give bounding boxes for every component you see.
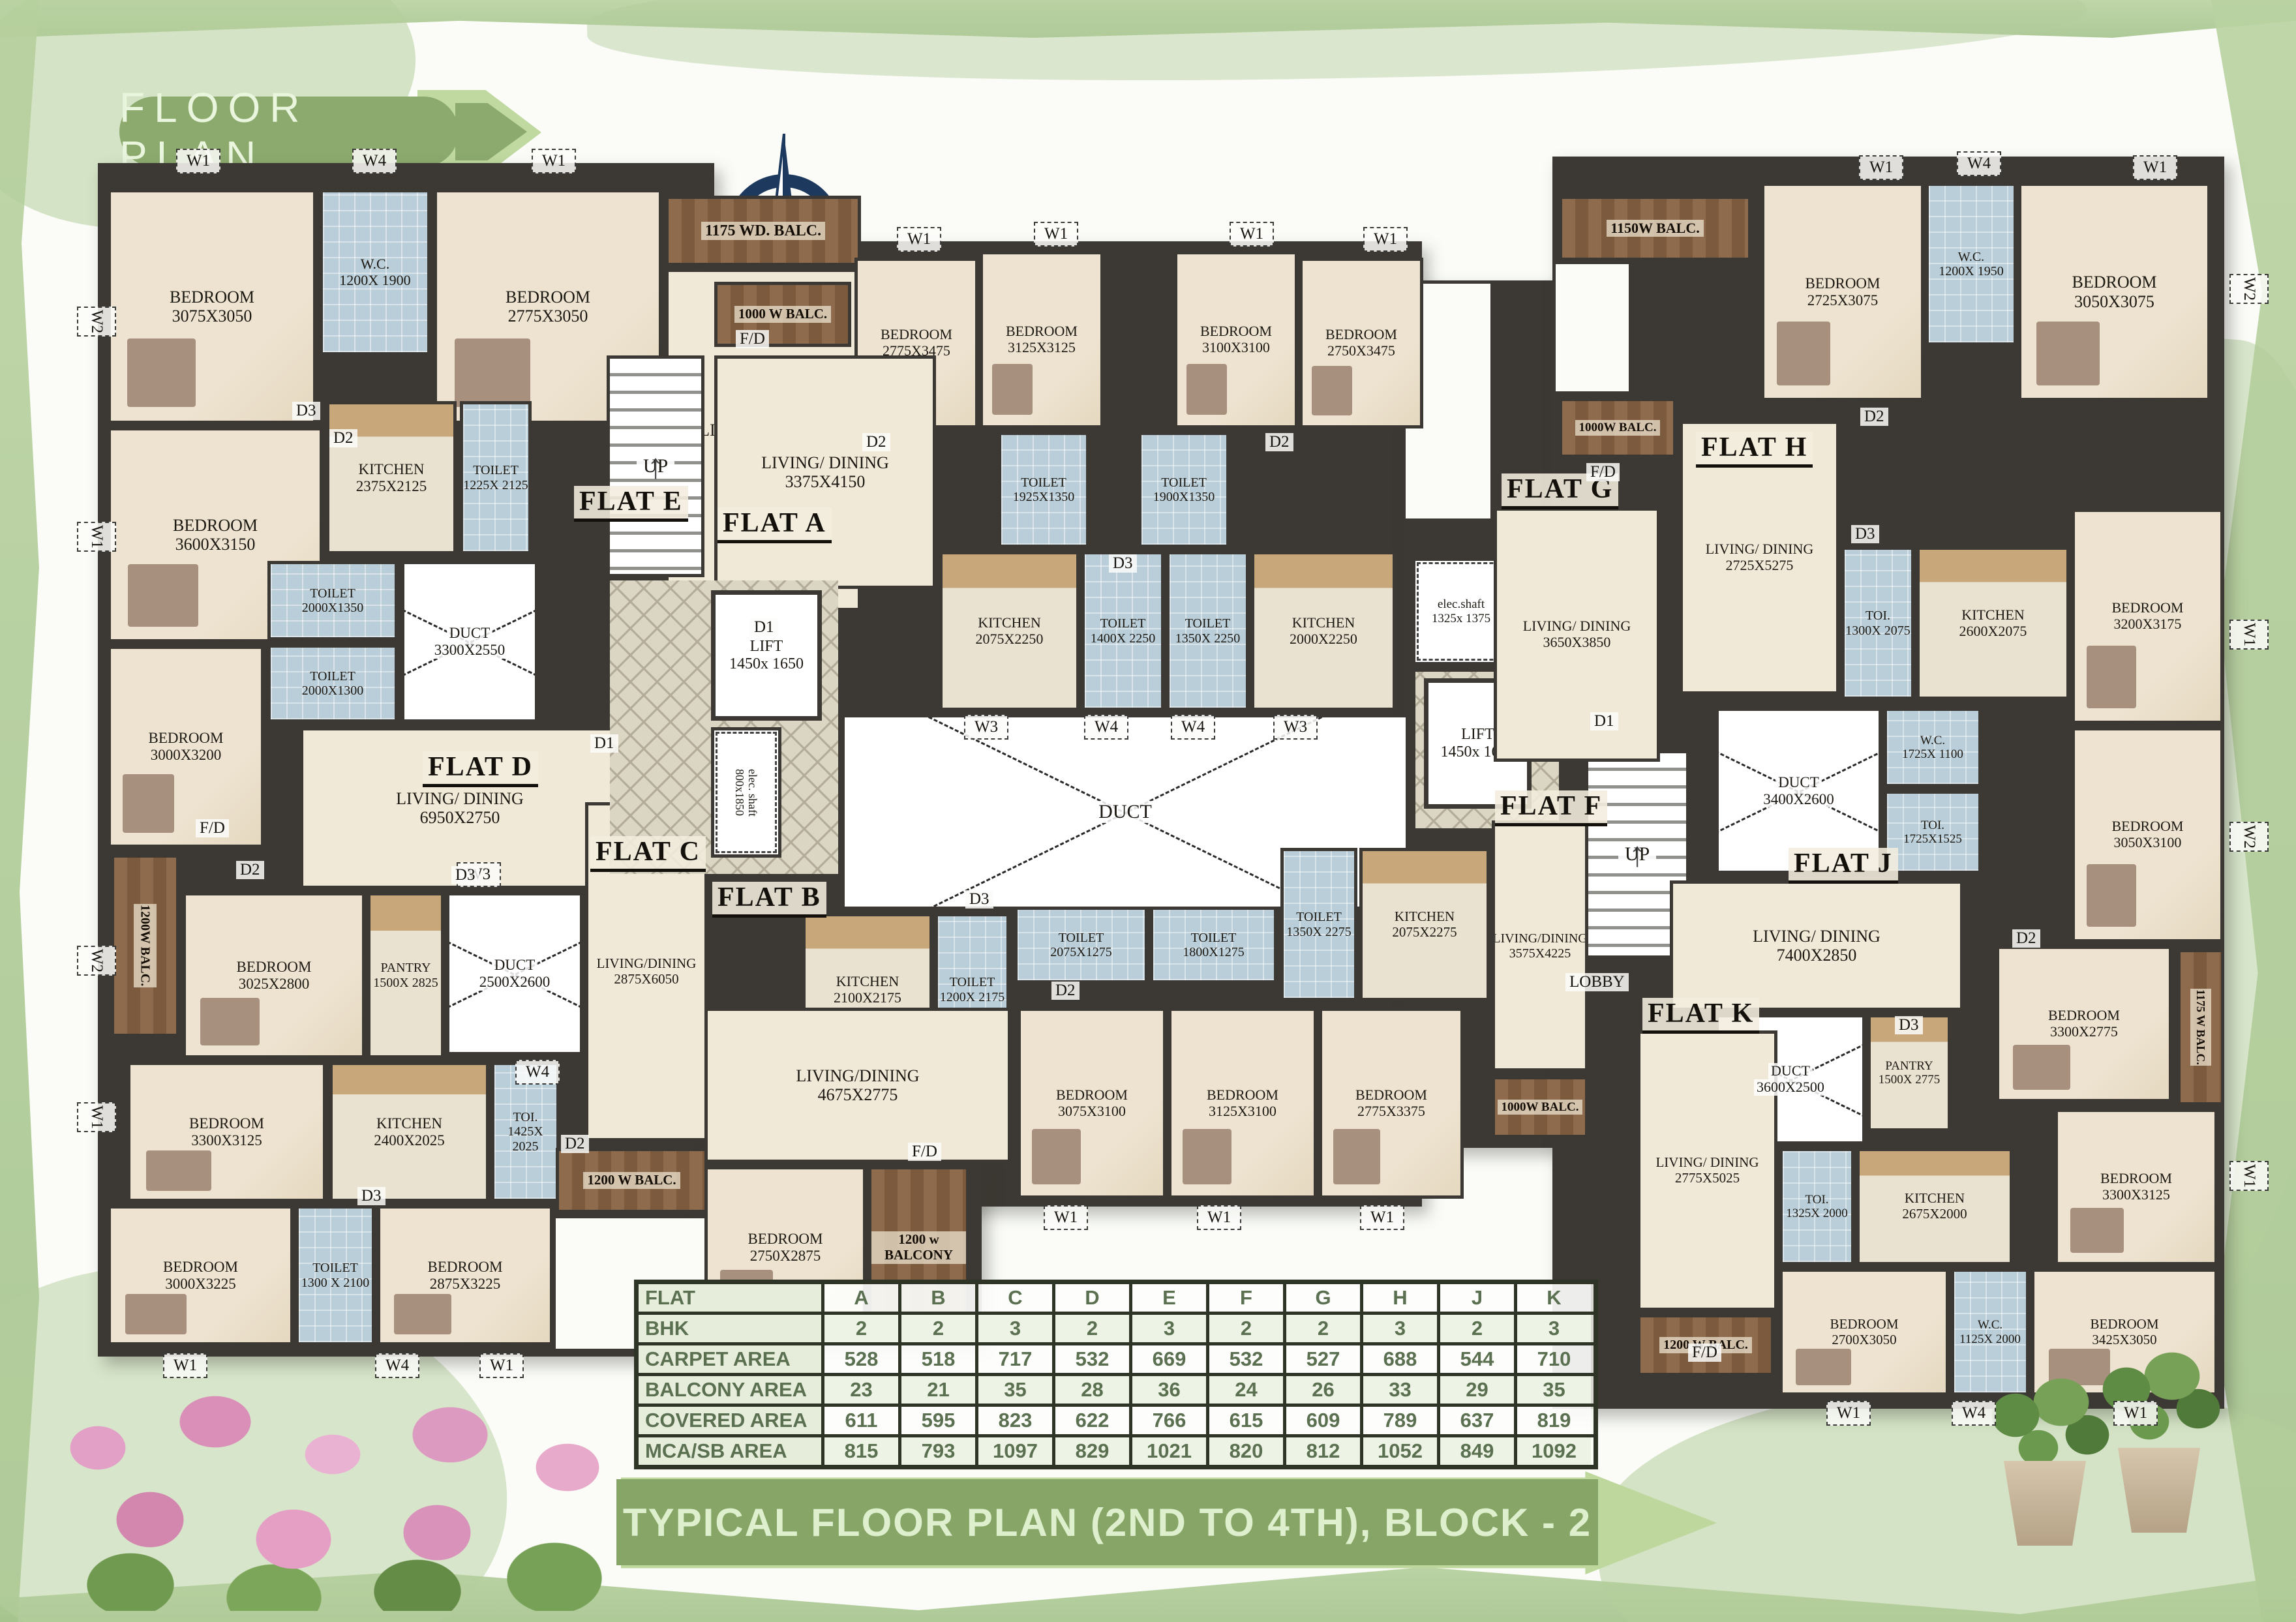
room-bedroom: BEDROOM3100X3100 bbox=[1174, 251, 1298, 428]
room-toi: TOI.1725X1525 bbox=[1884, 790, 1982, 874]
room-1000w-balc: 1000W BALC. bbox=[1559, 398, 1676, 458]
room-toilet: TOILET2075X1275 bbox=[1014, 907, 1148, 984]
room-dimensions: 3000X3225 bbox=[165, 1276, 236, 1293]
room-label: TOILET bbox=[312, 1261, 358, 1275]
plan-mark-w1: W1 bbox=[1044, 1205, 1088, 1230]
room-label: KITCHEN bbox=[359, 461, 425, 478]
room-bedroom: BEDROOM3000X3200 bbox=[108, 646, 264, 848]
plan-mark-w1: W1 bbox=[1197, 1205, 1241, 1230]
room-living-dining: LIVING/ DINING7400X2850 bbox=[1670, 880, 1963, 1011]
table-cell: 1021 bbox=[1129, 1437, 1206, 1465]
room-label: LIVING/DINING bbox=[597, 956, 697, 972]
table-cell: 528 bbox=[821, 1345, 898, 1373]
room-dimensions: 3200X3175 bbox=[2114, 616, 2182, 633]
table-cell: 24 bbox=[1206, 1376, 1283, 1404]
table-cell: 518 bbox=[898, 1345, 975, 1373]
table-cell: 36 bbox=[1129, 1376, 1206, 1404]
room-label: TOILET bbox=[1191, 931, 1237, 945]
plan-mark-w1: W1 bbox=[1859, 155, 1903, 180]
plan-mark-w1: W1 bbox=[897, 227, 941, 252]
room-dimensions: 2775X5025 bbox=[1675, 1171, 1740, 1186]
room-dimensions: 2500X2600 bbox=[477, 974, 553, 991]
plan-mark-w2: W2 bbox=[2229, 274, 2269, 304]
room-label: 1000W BALC. bbox=[1498, 1100, 1583, 1115]
plan-mark-d2: D2 bbox=[561, 1135, 589, 1153]
room-label: BEDROOM bbox=[173, 516, 258, 535]
room-w-c: W.C.1200X 1950 bbox=[1926, 183, 2017, 346]
room-label: PANTRY bbox=[1885, 1059, 1933, 1073]
table-cell: 1092 bbox=[1514, 1437, 1591, 1465]
room-label: LIVING/DINING bbox=[796, 1066, 919, 1085]
table-cell: 637 bbox=[1437, 1407, 1514, 1434]
banner: TYPICAL FLOOR PLAN (2ND TO 4TH), BLOCK -… bbox=[616, 1479, 1598, 1565]
room-label: TOILET bbox=[1059, 931, 1104, 945]
room-label: BEDROOM bbox=[163, 1259, 238, 1276]
plan-mark-w1: W1 bbox=[2229, 620, 2269, 650]
room-label: W.C. bbox=[361, 256, 389, 273]
table-cell: 3 bbox=[1514, 1315, 1591, 1342]
plan-mark-d1: D1 bbox=[590, 734, 618, 753]
room-dimensions: 2000X1300 bbox=[302, 683, 363, 698]
table-cell: 717 bbox=[975, 1345, 1052, 1373]
table-cell: 26 bbox=[1283, 1376, 1360, 1404]
room-label: KITCHEN bbox=[836, 974, 899, 990]
room-label: 1000W BALC. bbox=[1575, 420, 1661, 435]
table-cell: 532 bbox=[1052, 1345, 1129, 1373]
room-label: TOILET bbox=[1185, 616, 1231, 631]
room-label: BEDROOM bbox=[748, 1231, 823, 1248]
room-label: 1200 W BALC. bbox=[583, 1172, 680, 1189]
room-label: TOILET bbox=[1021, 475, 1066, 490]
table-row-bhk: BHK2232322323 bbox=[639, 1312, 1594, 1342]
plan-mark-w1: W1 bbox=[532, 149, 576, 173]
table-cell: 669 bbox=[1129, 1345, 1206, 1373]
room-label: KITCHEN bbox=[1961, 607, 2025, 623]
room-dimensions: 1500X 2775 bbox=[1879, 1073, 1940, 1087]
room-dimensions: 2400X2025 bbox=[374, 1132, 445, 1149]
room-label: W.C. bbox=[1958, 250, 1984, 264]
room-label: elec.shaft bbox=[1438, 597, 1485, 611]
room-label: TOILET bbox=[950, 975, 995, 989]
room-label: LIFT bbox=[1461, 726, 1494, 743]
table-cell: C bbox=[975, 1284, 1052, 1312]
room-label: LIVING/ DINING bbox=[1523, 618, 1631, 635]
flat-label-flat-h: FLAT H bbox=[1696, 432, 1813, 468]
table-cell: 710 bbox=[1514, 1345, 1591, 1373]
room-dimensions: 2675X2000 bbox=[1902, 1207, 1967, 1222]
table-cell: 532 bbox=[1206, 1345, 1283, 1373]
room-label: KITCHEN bbox=[1395, 909, 1455, 925]
room-lift: LIFT1450x 1650 bbox=[711, 590, 822, 721]
room-pantry: PANTRY1500X 2825 bbox=[367, 892, 444, 1059]
room-label: W.C. bbox=[1920, 734, 1945, 747]
table-cell: 33 bbox=[1360, 1376, 1437, 1404]
plan-mark-w1: W1 bbox=[163, 1353, 207, 1378]
plan-mark-w4: W4 bbox=[1171, 715, 1215, 740]
room-dimensions: 3050X3075 bbox=[2074, 292, 2154, 311]
room-label: BEDROOM bbox=[1830, 1317, 1898, 1332]
room-1200-w-balc: 1200 W BALC. bbox=[556, 1148, 708, 1213]
room-label: TOI. bbox=[1921, 819, 1944, 832]
room-label: KITCHEN bbox=[978, 615, 1041, 631]
room-dimensions: 1450x 1650 bbox=[729, 655, 804, 673]
room-label: LIVING/DINING bbox=[1492, 931, 1588, 946]
room-label: BEDROOM bbox=[1805, 275, 1880, 292]
room-toilet: TOILET2000X1300 bbox=[267, 644, 398, 723]
room-dimensions: 2075X2275 bbox=[1392, 925, 1457, 940]
plan-mark-w4: W4 bbox=[1957, 151, 2001, 176]
room-bedroom: BEDROOM3050X3100 bbox=[2072, 727, 2224, 942]
table-cell: 688 bbox=[1360, 1345, 1437, 1373]
room-1000w-balc: 1000W BALC. bbox=[1492, 1076, 1588, 1138]
room-label: LIVING/ DINING bbox=[1655, 1155, 1759, 1171]
plan-mark-w4: W4 bbox=[375, 1353, 419, 1378]
room-label: BEDROOM bbox=[148, 730, 223, 747]
room-kitchen: KITCHEN2000X2250 bbox=[1251, 551, 1396, 711]
room-duct: DUCT2500X2600 bbox=[446, 892, 583, 1055]
plan-mark-d1: D1 bbox=[750, 618, 778, 637]
plan-mark-w4: W4 bbox=[515, 1060, 560, 1085]
room-dimensions: 1900X1350 bbox=[1153, 490, 1215, 504]
plan-mark-f-d: F/D bbox=[908, 1143, 941, 1161]
room-dimensions: 2375X2125 bbox=[356, 478, 427, 495]
room-toilet: TOILET1800X1275 bbox=[1150, 907, 1277, 984]
room-dimensions: 2750X3475 bbox=[1327, 343, 1395, 359]
table-cell: A bbox=[821, 1284, 898, 1312]
room-dimensions: 2600X2075 bbox=[1959, 623, 2027, 640]
room-1150w-balc: 1150W BALC. bbox=[1559, 196, 1751, 261]
room-label: 1175 WD. BALC. bbox=[701, 222, 825, 241]
room-dimensions: 3025X2800 bbox=[239, 976, 310, 993]
room-label: BEDROOM bbox=[2111, 600, 2183, 616]
plan-mark-d3: D3 bbox=[965, 890, 993, 909]
room-label: DUCT bbox=[1096, 801, 1155, 823]
room-label: LIVING/ DINING bbox=[1706, 541, 1814, 558]
room-label: BEDROOM bbox=[189, 1115, 264, 1132]
flat-label-flat-e: FLAT E bbox=[574, 486, 688, 522]
room-label: LIVING/ DINING bbox=[396, 789, 524, 808]
room-dimensions: 2775X3375 bbox=[1357, 1104, 1425, 1120]
flat-label-flat-d: FLAT D bbox=[423, 751, 538, 787]
room-dimensions: 3600X3150 bbox=[175, 535, 256, 554]
plan-mark-f-d: F/D bbox=[1688, 1344, 1721, 1362]
room-bedroom: BEDROOM3025X2800 bbox=[183, 892, 365, 1059]
table-cell: F bbox=[1206, 1284, 1283, 1312]
room-bedroom: BEDROOM2700X3050 bbox=[1779, 1269, 1949, 1396]
plan-mark-w1: W1 bbox=[2133, 155, 2177, 180]
room-dimensions: 1325X 2000 bbox=[1786, 1207, 1847, 1220]
room-toilet: TOILET1350X 2275 bbox=[1280, 848, 1357, 1001]
room-dimensions: 3125X3125 bbox=[1008, 340, 1076, 356]
room-dimensions: 1200X 1950 bbox=[1939, 264, 2003, 278]
room-w-c: W.C.1200X 1900 bbox=[320, 189, 430, 355]
flat-label-flat-a: FLAT A bbox=[717, 507, 832, 543]
room-label: PANTRY bbox=[380, 961, 430, 975]
room-label: BEDROOM bbox=[170, 288, 254, 307]
room-dimensions: 1200X 1900 bbox=[339, 273, 410, 289]
room-dimensions: 1425X 2025 bbox=[494, 1124, 556, 1154]
flat-label-flat-f: FLAT F bbox=[1495, 790, 1607, 826]
room-dimensions: 3300X3125 bbox=[191, 1132, 262, 1149]
room-dimensions: 6950X2750 bbox=[420, 808, 500, 827]
plan-mark-d3: D3 bbox=[292, 402, 320, 420]
plan-mark-d2: D2 bbox=[1051, 982, 1080, 1000]
row-label: COVERED AREA bbox=[639, 1407, 821, 1434]
table-cell: 2 bbox=[1437, 1315, 1514, 1342]
plan-mark-d3: D3 bbox=[451, 866, 479, 884]
room-dimensions: 3075X3100 bbox=[1058, 1104, 1126, 1120]
room-dimensions: 1500X 2825 bbox=[373, 976, 438, 990]
room-label: BEDROOM bbox=[2090, 1317, 2158, 1332]
room-label: TOI. bbox=[1865, 608, 1890, 623]
room-label: BEDROOM bbox=[506, 288, 590, 307]
room-1175-wd-balc: 1175 WD. BALC. bbox=[665, 196, 861, 266]
table-cell: 615 bbox=[1206, 1407, 1283, 1434]
areas-table: FLATABCDEFGHJKBHK2232322323CARPET AREA52… bbox=[634, 1280, 1598, 1469]
room-label: UP bbox=[637, 454, 674, 479]
room-dimensions: 1350X 2275 bbox=[1286, 925, 1351, 939]
room-label: UP bbox=[1618, 842, 1656, 867]
room-dimensions: 1300 X 2100 bbox=[301, 1276, 369, 1290]
room-dimensions: 2075X2250 bbox=[976, 631, 1044, 648]
table-row-balcony-area: BALCONY AREA23213528362426332935 bbox=[639, 1373, 1594, 1404]
room-dimensions: 1225X 2125 bbox=[463, 478, 528, 492]
table-cell: 2 bbox=[1052, 1315, 1129, 1342]
room-label: TOILET bbox=[473, 463, 519, 477]
table-cell: 766 bbox=[1129, 1407, 1206, 1434]
table-cell: 789 bbox=[1360, 1407, 1437, 1434]
room-dimensions: 2750X2875 bbox=[750, 1248, 821, 1265]
room-1175-w-balc: 1175 W BALC. bbox=[2177, 949, 2224, 1105]
table-cell: 527 bbox=[1283, 1345, 1360, 1373]
plan-mark-w1: W1 bbox=[1363, 227, 1408, 252]
table-cell: B bbox=[898, 1284, 975, 1312]
table-cell: H bbox=[1360, 1284, 1437, 1312]
table-cell: 3 bbox=[1129, 1315, 1206, 1342]
table-cell: 1097 bbox=[975, 1437, 1052, 1465]
room-living-dining: LIVING/ DINING2775X5025 bbox=[1637, 1030, 1777, 1311]
room-bedroom: BEDROOM3300X3125 bbox=[2055, 1109, 2218, 1265]
plan-mark-w1: W1 bbox=[77, 1102, 116, 1132]
plan-mark-d2: D2 bbox=[329, 429, 357, 447]
plan-mark-w2: W2 bbox=[77, 307, 116, 337]
exterior-void bbox=[1556, 264, 1629, 391]
room-toilet: TOILET2000X1350 bbox=[267, 561, 398, 640]
room-dimensions: 1300X 2075 bbox=[1845, 623, 1910, 638]
room-dimensions: 3375X4150 bbox=[785, 472, 866, 491]
room-dimensions: 3600X2500 bbox=[1754, 1079, 1827, 1096]
room-label: LIVING/ DINING bbox=[761, 453, 889, 472]
room-dimensions: 1800X1275 bbox=[1183, 945, 1244, 959]
room-bedroom: BEDROOM3125X3125 bbox=[980, 251, 1104, 428]
table-cell: E bbox=[1129, 1284, 1206, 1312]
table-row-flat: FLATABCDEFGHJK bbox=[639, 1284, 1594, 1312]
plan-mark-f-d: F/D bbox=[196, 819, 229, 837]
room-label: BEDROOM bbox=[1325, 327, 1397, 343]
plan-mark-d2: D2 bbox=[2012, 929, 2040, 948]
plan-mark-w3: W3 bbox=[964, 715, 1008, 740]
room-living-dining: LIVING/ DINING3375X4150 bbox=[714, 355, 936, 589]
flat-label-flat-k: FLAT K bbox=[1642, 998, 1759, 1034]
room-label: TOI. bbox=[1805, 1193, 1828, 1207]
room-dimensions: 3075X3050 bbox=[172, 307, 252, 325]
room-label: TOILET bbox=[1296, 910, 1342, 924]
room-dimensions: 1325x 1375 bbox=[1432, 612, 1490, 625]
room-toi: TOI.1300X 2075 bbox=[1841, 547, 1914, 700]
table-cell: J bbox=[1437, 1284, 1514, 1312]
table-cell: 611 bbox=[821, 1407, 898, 1434]
table-cell: 829 bbox=[1052, 1437, 1129, 1465]
table-cell: 3 bbox=[1360, 1315, 1437, 1342]
room-label: elec. shaft bbox=[746, 769, 759, 817]
potted-plant bbox=[2087, 1330, 2231, 1454]
room-dimensions: 2000X1350 bbox=[302, 601, 363, 615]
room-label: KITCHEN bbox=[376, 1115, 442, 1132]
room-dimensions: 4675X2775 bbox=[818, 1085, 898, 1104]
room-bedroom: BEDROOM3125X3100 bbox=[1168, 1008, 1317, 1199]
room-dimensions: 2725X3075 bbox=[1807, 292, 1879, 309]
row-label: BALCONY AREA bbox=[639, 1376, 821, 1404]
room-dimensions: 3300X2550 bbox=[432, 642, 508, 659]
plan-mark-w1: W1 bbox=[1230, 222, 1274, 247]
room-dimensions: 1200X 2175 bbox=[940, 990, 1004, 1004]
room-bedroom: BEDROOM3300X2775 bbox=[1996, 946, 2172, 1102]
room-label: LIFT bbox=[750, 638, 783, 655]
room-bedroom: BEDROOM2725X3075 bbox=[1761, 183, 1924, 401]
room-label: BEDROOM bbox=[2111, 819, 2183, 835]
room-duct: DUCT3300X2550 bbox=[401, 561, 538, 723]
table-cell: 595 bbox=[898, 1407, 975, 1434]
table-cell: 35 bbox=[975, 1376, 1052, 1404]
plan-mark-lobby: LOBBY bbox=[1565, 973, 1629, 991]
room-label: BEDROOM bbox=[2100, 1171, 2172, 1187]
table-cell: 812 bbox=[1283, 1437, 1360, 1465]
room-kitchen: KITCHEN2075X2275 bbox=[1359, 848, 1490, 1001]
table-cell: 35 bbox=[1514, 1376, 1591, 1404]
room-toilet: TOILET1225X 2125 bbox=[460, 401, 532, 554]
room-toi: TOI.1325X 2000 bbox=[1779, 1148, 1854, 1265]
room-dimensions: 1125X 2000 bbox=[1959, 1332, 2021, 1346]
room-label: BEDROOM bbox=[1056, 1087, 1128, 1104]
room-living-dining: LIVING/DINING3575X4225 bbox=[1492, 820, 1588, 1072]
banner-text: TYPICAL FLOOR PLAN (2ND TO 4TH), BLOCK -… bbox=[623, 1500, 1592, 1545]
room-dimensions: 3300X2775 bbox=[2050, 1024, 2118, 1040]
room-bedroom: BEDROOM3050X3075 bbox=[2018, 183, 2211, 401]
room-label: 1000 W BALC. bbox=[734, 306, 831, 323]
room-label: KITCHEN bbox=[1292, 615, 1355, 631]
table-cell: 793 bbox=[898, 1437, 975, 1465]
plan-mark-d2: D2 bbox=[862, 433, 890, 451]
row-label: CARPET AREA bbox=[639, 1345, 821, 1373]
table-cell: 820 bbox=[1206, 1437, 1283, 1465]
room-dimensions: 1925X1350 bbox=[1013, 490, 1074, 504]
plan-mark-w3: W3 bbox=[1273, 715, 1318, 740]
plan-mark-f-d: F/D bbox=[736, 330, 769, 348]
row-label: BHK bbox=[639, 1315, 821, 1342]
room-kitchen: KITCHEN2400X2025 bbox=[329, 1062, 489, 1202]
room-living-dining: LIVING/DINING4675X2775 bbox=[704, 1008, 1011, 1163]
plan-mark-d2: D2 bbox=[1860, 408, 1888, 426]
room-dimensions: 3575X4225 bbox=[1509, 946, 1571, 961]
room-dimensions: 1725X 1100 bbox=[1902, 747, 1963, 761]
room-label: TOI. bbox=[513, 1110, 538, 1124]
room-bedroom: BEDROOM2775X3375 bbox=[1319, 1008, 1464, 1199]
room-label: TOILET bbox=[310, 669, 355, 683]
room-label: TOILET bbox=[1161, 475, 1207, 490]
plan-mark-w1: W1 bbox=[1826, 1401, 1871, 1426]
room-living-dining: LIVING/ DINING3650X3850 bbox=[1494, 507, 1660, 762]
room-bedroom: BEDROOM3200X3175 bbox=[2072, 509, 2224, 724]
room-dimensions: 3125X3100 bbox=[1209, 1104, 1276, 1120]
room-dimensions: 1400X 2250 bbox=[1091, 631, 1155, 646]
room-label: TOILET bbox=[1100, 616, 1146, 631]
room-dimensions: 3050X3100 bbox=[2114, 835, 2182, 851]
room-dimensions: 1725X1525 bbox=[1903, 832, 1962, 846]
room-kitchen: KITCHEN2600X2075 bbox=[1916, 547, 2070, 700]
room-dimensions: 2875X6050 bbox=[614, 972, 678, 987]
plan-mark-w1: W1 bbox=[479, 1353, 524, 1378]
table-cell: 21 bbox=[898, 1376, 975, 1404]
table-cell: 622 bbox=[1052, 1407, 1129, 1434]
table-row-covered-area: COVERED AREA6115958236227666156097896378… bbox=[639, 1404, 1594, 1434]
plan-mark-w1: W1 bbox=[1360, 1205, 1404, 1230]
table-cell: G bbox=[1283, 1284, 1360, 1312]
room-label: TOILET bbox=[310, 586, 355, 601]
room-label: DUCT bbox=[492, 957, 538, 974]
table-cell: 2 bbox=[1206, 1315, 1283, 1342]
room-elec-shaft: elec. shaft800x1850 bbox=[711, 727, 781, 858]
room-label: BEDROOM bbox=[1006, 323, 1078, 340]
table-cell: 28 bbox=[1052, 1376, 1129, 1404]
plan-mark-d2: D2 bbox=[236, 861, 264, 879]
room-bedroom: BEDROOM3075X3050 bbox=[108, 189, 316, 424]
plan-mark-w2: W2 bbox=[2229, 822, 2269, 852]
room-1200w-balc: 1200W BALC. bbox=[111, 854, 179, 1037]
table-cell: 815 bbox=[821, 1437, 898, 1465]
room-label: BEDROOM bbox=[2072, 273, 2156, 292]
room-toilet: TOILET1350X 2250 bbox=[1166, 551, 1249, 711]
room-label: KITCHEN bbox=[1905, 1191, 1965, 1207]
room-dimensions: 2725X5275 bbox=[1726, 558, 1794, 574]
room-dimensions: 2075X1275 bbox=[1050, 945, 1111, 959]
room-label: W.C. bbox=[1978, 1318, 2002, 1332]
room-dimensions: 2100X2175 bbox=[834, 990, 901, 1006]
room-label: DUCT bbox=[1768, 1063, 1813, 1079]
room-dimensions: 3300X3125 bbox=[2102, 1187, 2170, 1203]
plan-mark-w1: W1 bbox=[1034, 222, 1078, 247]
room-label: DUCT bbox=[1775, 774, 1822, 791]
plan-mark-w4: W4 bbox=[1952, 1401, 1996, 1426]
room-label: BEDROOM bbox=[1207, 1087, 1278, 1104]
room-label: BEDROOM bbox=[236, 959, 311, 976]
table-cell: 2 bbox=[1283, 1315, 1360, 1342]
room-toilet: TOILET1925X1350 bbox=[998, 432, 1089, 548]
room-label: BEDROOM bbox=[881, 327, 952, 343]
room-dimensions: 2000X2250 bbox=[1290, 631, 1357, 648]
plan-mark-w1: W1 bbox=[176, 149, 220, 173]
plan-mark-w1: W1 bbox=[77, 522, 116, 552]
room-label: BEDROOM bbox=[1200, 323, 1272, 340]
room-dimensions: 2775X3050 bbox=[508, 307, 588, 325]
table-cell: 819 bbox=[1514, 1407, 1591, 1434]
floor-plan-poster: FLOOR PLAN N BEDROOM3075X3050W.C.1200X 1… bbox=[0, 0, 2296, 1622]
table-cell: 544 bbox=[1437, 1345, 1514, 1373]
room-toilet: TOILET1400X 2250 bbox=[1081, 551, 1164, 711]
room-up: UP bbox=[607, 355, 704, 577]
room-label: 1175 W BALC. bbox=[2190, 989, 2211, 1066]
plan-mark-f-d: F/D bbox=[1586, 463, 1620, 481]
room-label: BEDROOM bbox=[2048, 1008, 2120, 1024]
